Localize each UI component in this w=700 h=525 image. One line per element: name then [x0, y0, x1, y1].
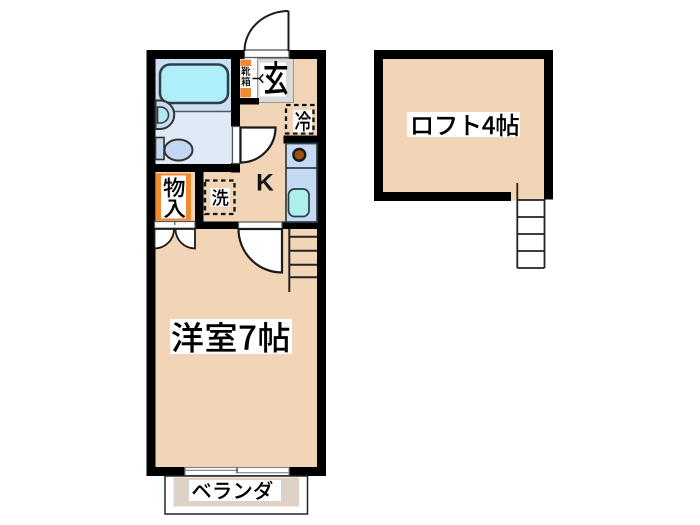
svg-text:K: K: [256, 169, 274, 196]
